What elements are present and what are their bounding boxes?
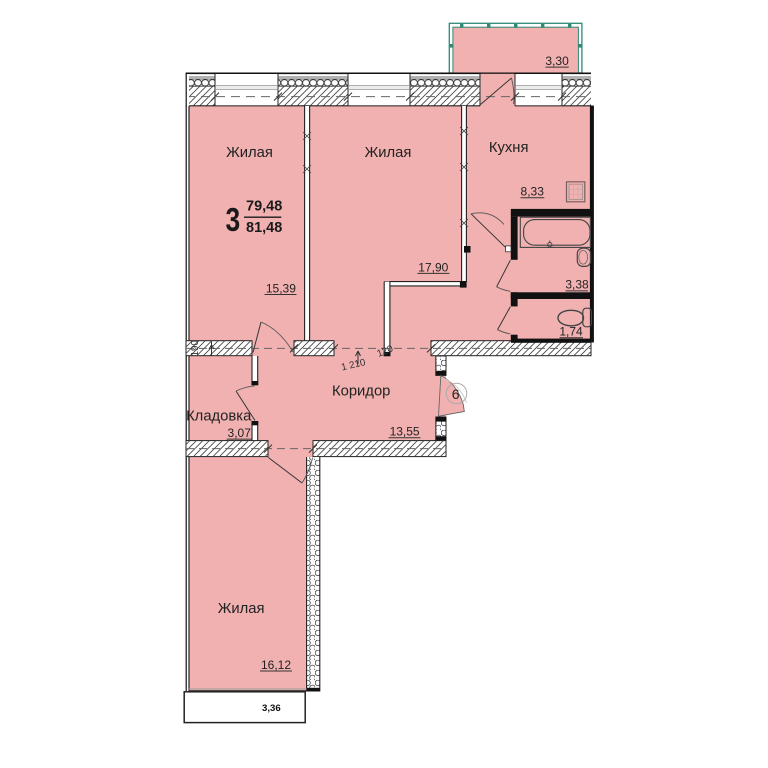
svg-text:3,30: 3,30 — [545, 54, 569, 68]
svg-text:190: 190 — [190, 340, 201, 357]
svg-text:1,74: 1,74 — [559, 325, 583, 339]
svg-text:81,48: 81,48 — [246, 220, 282, 236]
svg-text:Жилая: Жилая — [218, 601, 265, 617]
svg-text:16,12: 16,12 — [261, 658, 291, 672]
svg-text:17,90: 17,90 — [418, 260, 448, 274]
svg-text:15,39: 15,39 — [266, 281, 296, 295]
svg-text:3,38: 3,38 — [565, 278, 589, 292]
svg-text:Жилая: Жилая — [226, 145, 273, 161]
svg-text:13,55: 13,55 — [390, 425, 420, 439]
svg-text:Кладовка: Кладовка — [186, 409, 252, 425]
svg-text:Кухня: Кухня — [489, 140, 529, 156]
svg-text:6: 6 — [452, 386, 460, 402]
svg-text:Коридор: Коридор — [332, 384, 390, 400]
svg-text:3,36: 3,36 — [262, 703, 281, 714]
svg-text:3: 3 — [226, 202, 241, 238]
svg-text:Жилая: Жилая — [365, 145, 412, 161]
svg-text:3,07: 3,07 — [228, 426, 252, 440]
svg-text:79,48: 79,48 — [246, 199, 282, 215]
svg-text:8,33: 8,33 — [521, 184, 545, 198]
